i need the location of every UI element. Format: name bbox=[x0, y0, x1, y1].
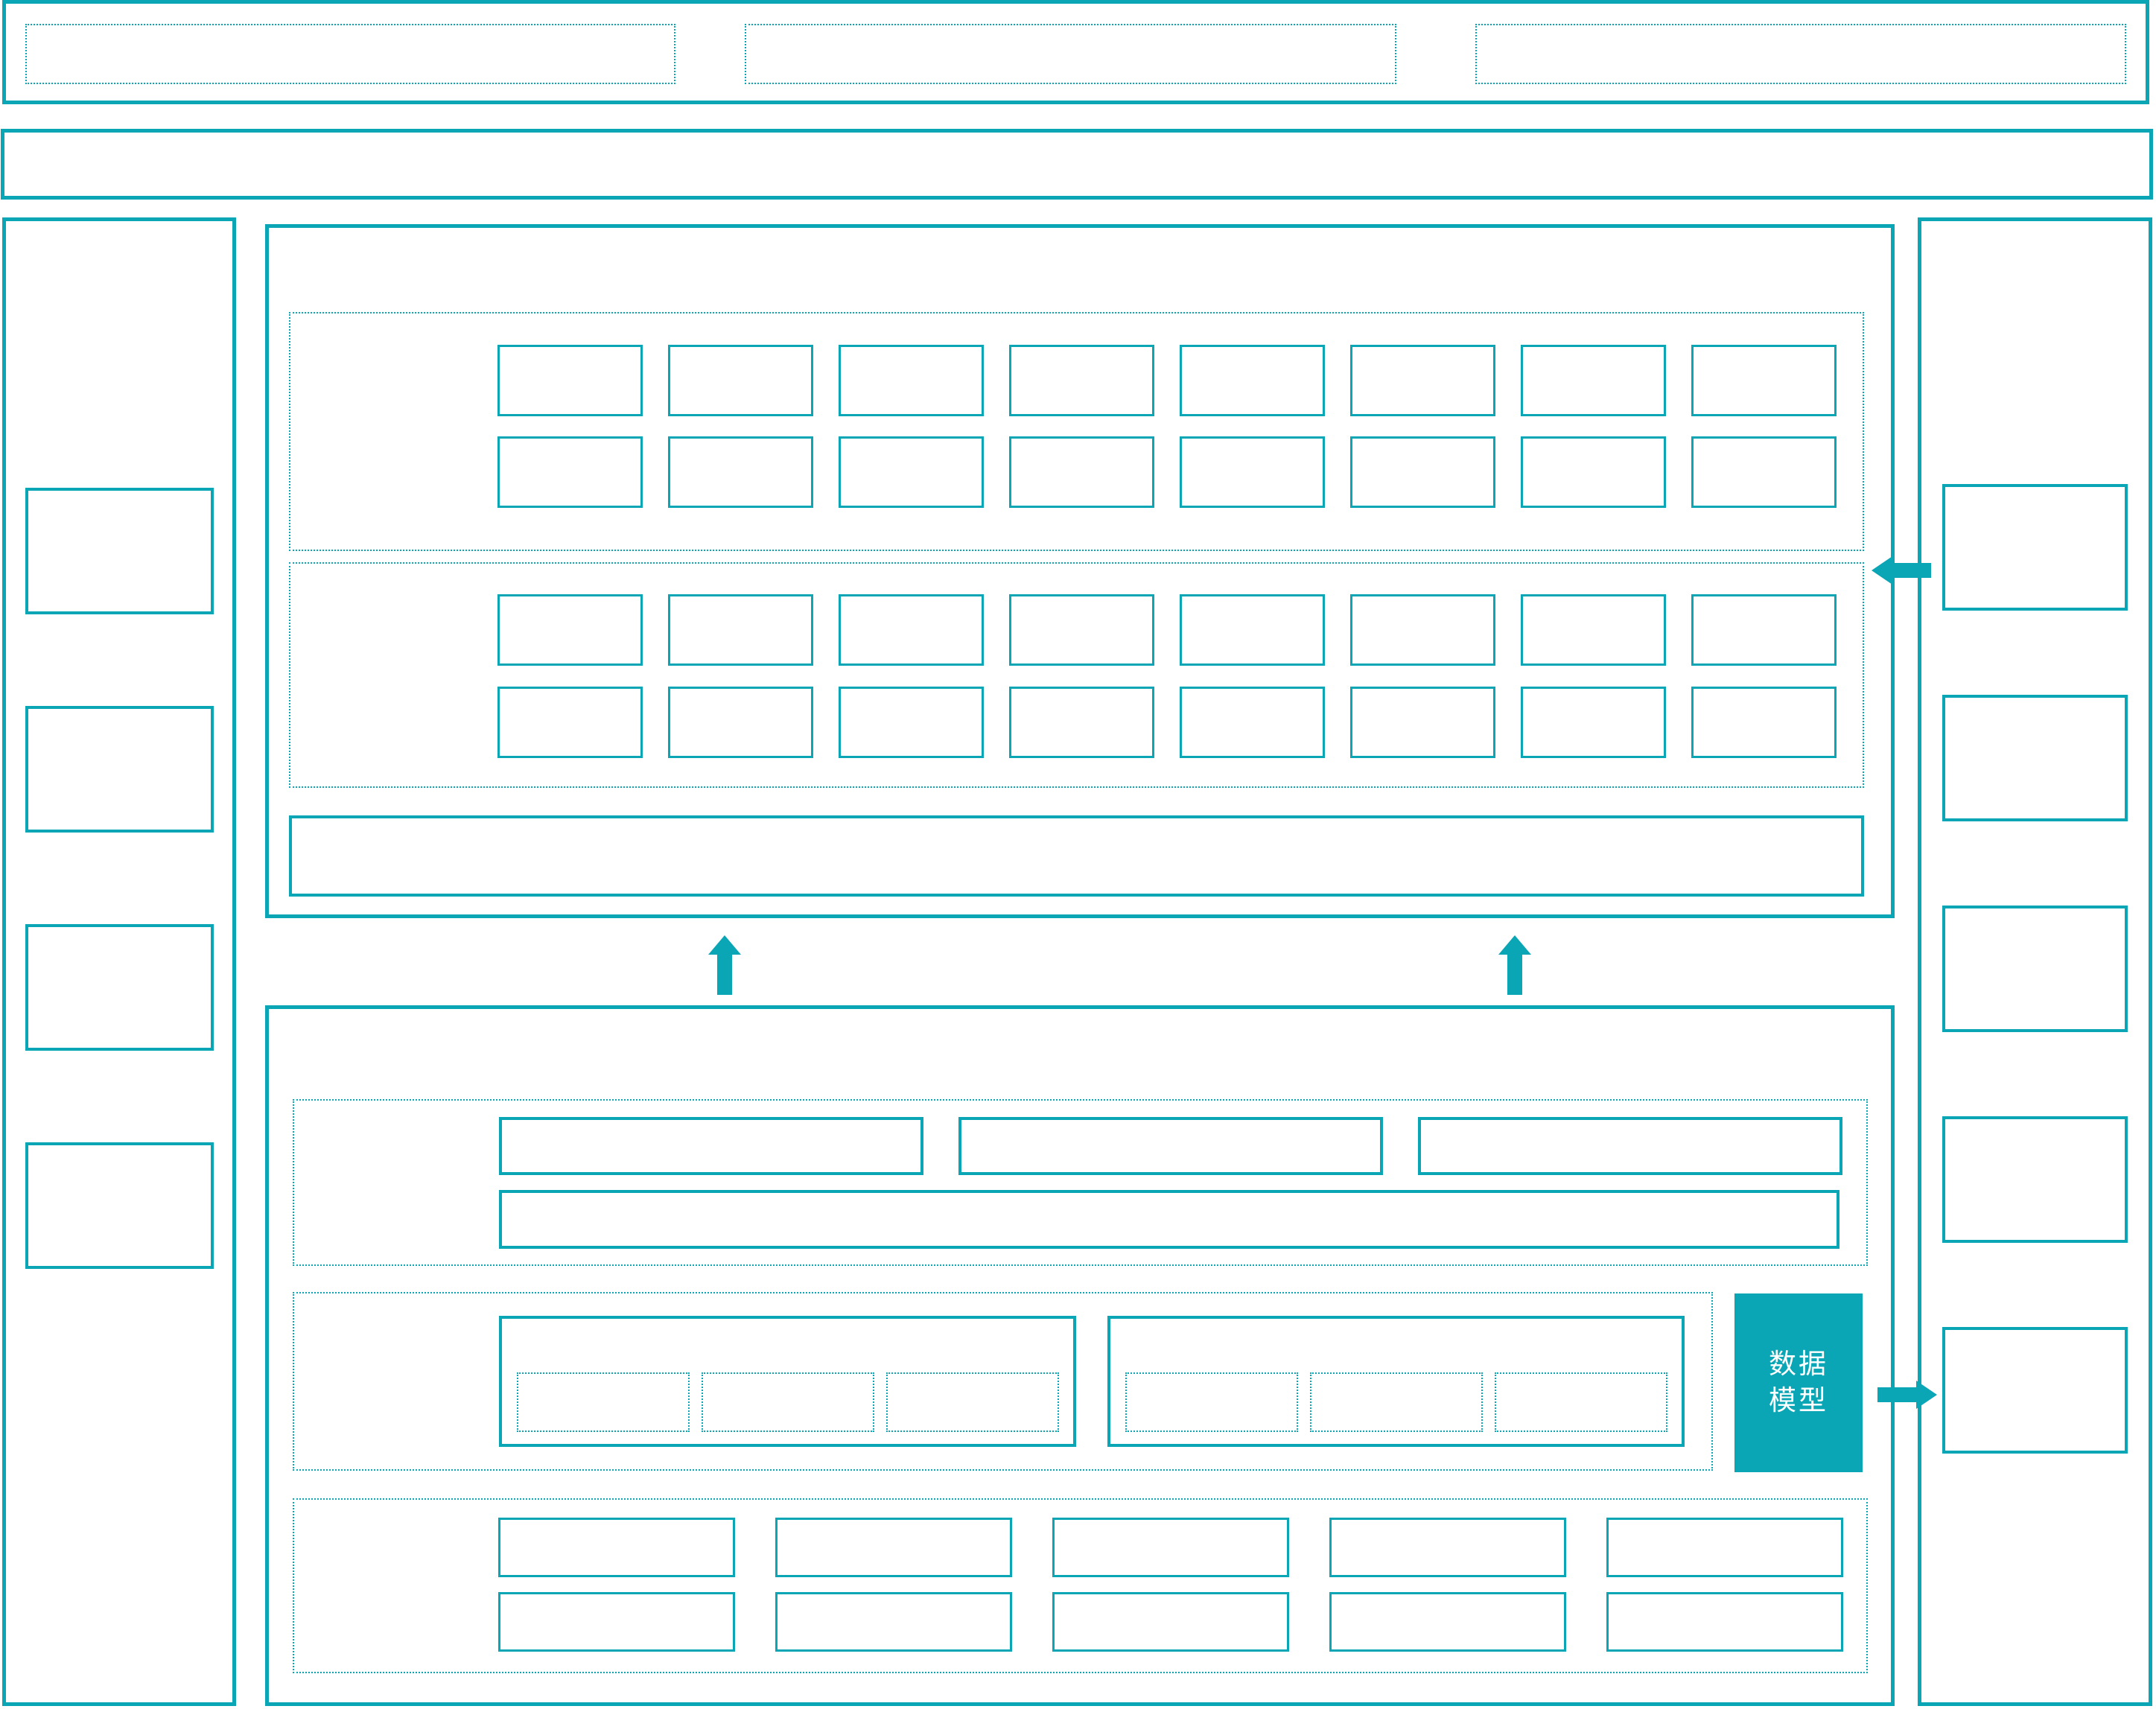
box-row bbox=[498, 1518, 1843, 1577]
lower-section-3 bbox=[293, 1498, 1868, 1673]
grid-box bbox=[1180, 345, 1325, 416]
grid-box bbox=[1521, 594, 1666, 666]
grid-box bbox=[668, 687, 813, 758]
box-row bbox=[497, 594, 1837, 666]
grid-box bbox=[1180, 436, 1325, 508]
box-grid bbox=[497, 345, 1837, 508]
grid-box bbox=[1329, 1518, 1566, 1577]
grid-box bbox=[1009, 345, 1154, 416]
grid-box bbox=[839, 436, 984, 508]
arrow-shaft bbox=[1507, 955, 1522, 995]
data-model-label-line1: 数据 bbox=[1769, 1346, 1828, 1383]
arrow-shaft bbox=[1877, 1387, 1916, 1402]
box-grid bbox=[497, 594, 1837, 758]
grid-box bbox=[1329, 1592, 1566, 1652]
grid-box bbox=[1691, 436, 1837, 508]
sidebar-box bbox=[25, 706, 214, 833]
top-bar-placeholder-2 bbox=[745, 24, 1396, 84]
top-bar-placeholder-1 bbox=[25, 24, 675, 84]
arrow-shaft bbox=[717, 955, 732, 995]
sidebar-box bbox=[25, 924, 214, 1051]
arrow-head bbox=[1872, 556, 1892, 585]
data-model-label-line2: 模型 bbox=[1769, 1383, 1828, 1419]
sidebar-box bbox=[1942, 695, 2128, 821]
wide-box bbox=[958, 1117, 1383, 1175]
grid-box bbox=[1350, 687, 1495, 758]
arrow-head bbox=[1498, 935, 1531, 955]
grid-box bbox=[498, 1518, 735, 1577]
right-sidebar bbox=[1918, 217, 2152, 1706]
slot-box bbox=[1495, 1372, 1667, 1432]
box-row bbox=[497, 345, 1837, 416]
wide-box bbox=[1418, 1117, 1842, 1175]
grid-box bbox=[839, 594, 984, 666]
group-box-1 bbox=[499, 1316, 1076, 1447]
slot-row bbox=[1125, 1372, 1667, 1432]
grid-box bbox=[668, 594, 813, 666]
arrow-head bbox=[708, 935, 741, 955]
slot-box bbox=[1125, 1372, 1298, 1432]
grid-box bbox=[839, 345, 984, 416]
box-row bbox=[498, 1592, 1843, 1652]
top-bar-placeholder-3 bbox=[1475, 24, 2126, 84]
grid-box bbox=[1009, 687, 1154, 758]
group-box-2 bbox=[1107, 1316, 1685, 1447]
arrow-shaft bbox=[1892, 563, 1931, 578]
box-row bbox=[497, 436, 1837, 508]
grid-box bbox=[497, 594, 643, 666]
up-arrow-icon bbox=[708, 935, 741, 995]
slot-box bbox=[517, 1372, 690, 1432]
slot-row bbox=[517, 1372, 1059, 1432]
grid-box bbox=[498, 1592, 735, 1652]
grid-box bbox=[1606, 1518, 1843, 1577]
slot-box bbox=[702, 1372, 874, 1432]
grid-box bbox=[1009, 436, 1154, 508]
wide-box bbox=[499, 1117, 923, 1175]
grid-box bbox=[1521, 436, 1666, 508]
grid-box bbox=[1052, 1592, 1289, 1652]
grid-box bbox=[1009, 594, 1154, 666]
architecture-diagram: 数据 模型 bbox=[0, 0, 2156, 1709]
lower-section-2 bbox=[293, 1292, 1713, 1471]
upper-section-2 bbox=[289, 562, 1864, 788]
upper-section-1 bbox=[289, 312, 1864, 551]
grid-box bbox=[775, 1518, 1012, 1577]
up-arrow-icon bbox=[1498, 935, 1531, 995]
grid-box bbox=[839, 687, 984, 758]
grid-box bbox=[1180, 687, 1325, 758]
grid-box bbox=[1350, 345, 1495, 416]
sidebar-box bbox=[1942, 1116, 2128, 1243]
left-arrow-icon bbox=[1872, 556, 1931, 585]
grid-box bbox=[497, 345, 643, 416]
box-row bbox=[497, 687, 1837, 758]
sidebar-box bbox=[1942, 906, 2128, 1032]
grid-box bbox=[1350, 594, 1495, 666]
sidebar-box bbox=[1942, 1327, 2128, 1454]
lower-long-box bbox=[499, 1190, 1839, 1249]
lower-section-1 bbox=[293, 1099, 1868, 1266]
grid-box bbox=[668, 436, 813, 508]
grid-box bbox=[1052, 1518, 1289, 1577]
grid-box bbox=[1350, 436, 1495, 508]
slot-box bbox=[886, 1372, 1059, 1432]
arrow-head bbox=[1916, 1381, 1937, 1409]
top-bar bbox=[2, 0, 2149, 104]
lower-panel: 数据 模型 bbox=[265, 1005, 1895, 1706]
upper-long-box bbox=[289, 815, 1864, 897]
grid-box bbox=[1521, 345, 1666, 416]
slot-box bbox=[1310, 1372, 1483, 1432]
grid-box bbox=[1606, 1592, 1843, 1652]
data-model-box: 数据 模型 bbox=[1734, 1293, 1863, 1472]
grid-box bbox=[1691, 345, 1837, 416]
grid-box bbox=[1521, 687, 1666, 758]
banner-bar bbox=[1, 129, 2153, 200]
sidebar-box bbox=[1942, 484, 2128, 611]
left-sidebar bbox=[2, 217, 236, 1706]
grid-box bbox=[497, 436, 643, 508]
grid-box bbox=[775, 1592, 1012, 1652]
grid-box bbox=[1180, 594, 1325, 666]
grid-box bbox=[1691, 687, 1837, 758]
sidebar-box bbox=[25, 1142, 214, 1269]
wide-box-row bbox=[499, 1117, 1842, 1175]
grid-box bbox=[1691, 594, 1837, 666]
right-arrow-icon bbox=[1877, 1381, 1937, 1409]
grid-box bbox=[668, 345, 813, 416]
grid-box bbox=[497, 687, 643, 758]
upper-panel bbox=[265, 224, 1895, 918]
sidebar-box bbox=[25, 488, 214, 614]
